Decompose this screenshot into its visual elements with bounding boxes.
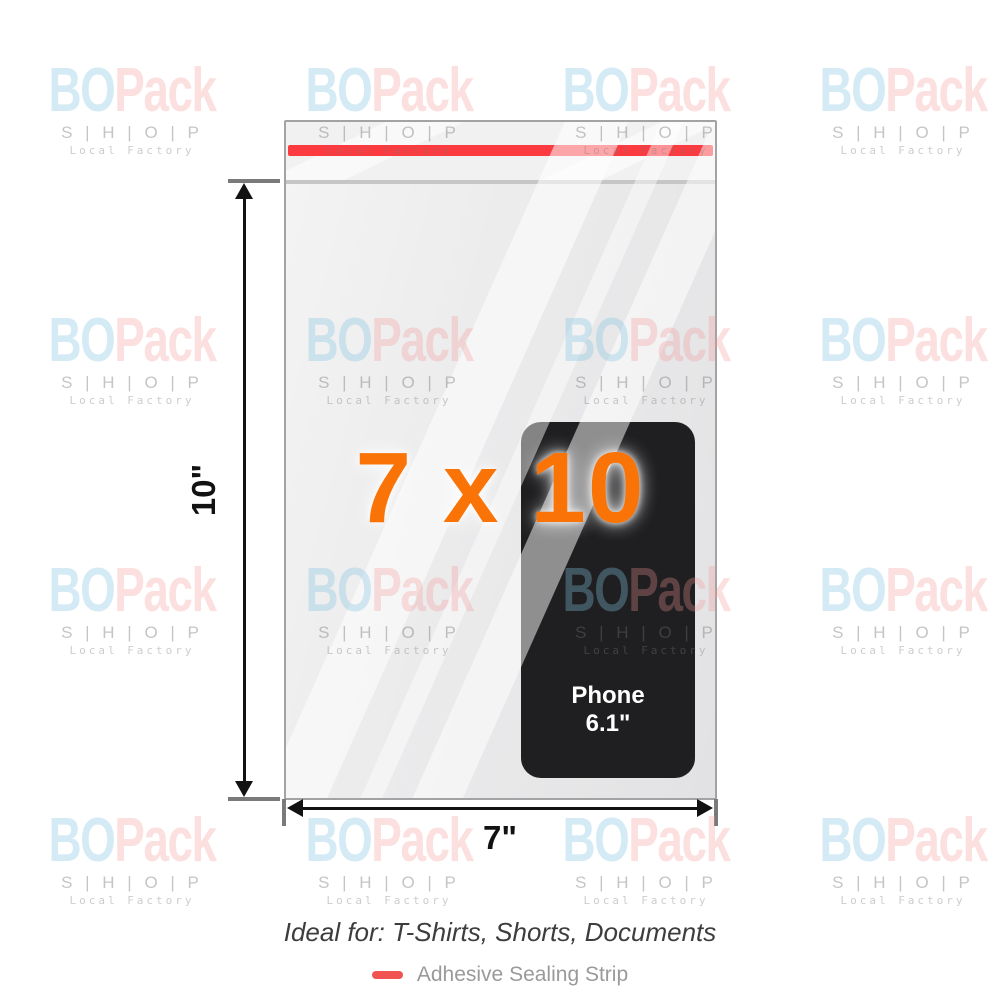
watermark-tagline: Local Factory: [0, 645, 272, 656]
watermark-shop-line: S | H | O | P: [0, 124, 272, 141]
legend-row: Adhesive Sealing Strip: [0, 961, 1000, 989]
phone-label-line2: 6.1": [521, 710, 695, 738]
watermark-brand: BOPack: [28, 810, 235, 872]
watermark-brand: BOPack: [542, 60, 749, 122]
watermark-brand: BOPack: [799, 560, 1000, 622]
legend-swatch: [372, 971, 403, 979]
watermark-tile: BOPack S | H | O | P Local Factory: [0, 810, 272, 906]
height-dimension-line: [243, 195, 246, 787]
arrow-up-icon: [235, 183, 253, 199]
watermark-brand-first: BO: [562, 56, 628, 125]
watermark-tagline: Local Factory: [506, 895, 786, 906]
width-tick-right: [714, 799, 718, 826]
watermark-brand-first: BO: [48, 556, 114, 625]
watermark-brand-second: Pack: [628, 56, 729, 125]
arrow-down-icon: [235, 781, 253, 797]
legend-label: Adhesive Sealing Strip: [417, 963, 628, 987]
watermark-brand: BOPack: [799, 810, 1000, 872]
phone-label: Phone 6.1": [521, 682, 695, 738]
watermark-tagline: Local Factory: [763, 145, 1000, 156]
watermark-shop-line: S | H | O | P: [763, 374, 1000, 391]
watermark-tagline: Local Factory: [0, 145, 272, 156]
phone-label-line1: Phone: [521, 682, 695, 710]
width-label: 7": [483, 819, 517, 857]
watermark-brand: BOPack: [799, 60, 1000, 122]
watermark-brand-second: Pack: [885, 56, 986, 125]
watermark-brand-first: BO: [48, 806, 114, 875]
watermark-brand: BOPack: [799, 310, 1000, 372]
watermark-shop-line: S | H | O | P: [0, 874, 272, 891]
watermark-brand-first: BO: [819, 556, 885, 625]
ideal-for-caption: Ideal for: T-Shirts, Shorts, Documents: [0, 917, 1000, 948]
watermark-brand-second: Pack: [371, 56, 472, 125]
watermark-brand-second: Pack: [114, 806, 215, 875]
watermark-brand-second: Pack: [885, 556, 986, 625]
watermark-shop-line: S | H | O | P: [0, 374, 272, 391]
watermark-shop-line: S | H | O | P: [0, 624, 272, 641]
watermark-tile: BOPack S | H | O | P Local Factory: [763, 310, 1000, 406]
height-label: 10": [185, 464, 223, 516]
height-tick-bottom: [228, 797, 280, 801]
product-image-canvas: Phone 6.1" 7 x 10 10" 7" Ideal for: T-Sh…: [0, 0, 1000, 1000]
watermark-shop-line: S | H | O | P: [763, 624, 1000, 641]
watermark-brand-second: Pack: [371, 806, 472, 875]
watermark-brand-second: Pack: [885, 806, 986, 875]
watermark-brand: BOPack: [285, 60, 492, 122]
watermark-brand-first: BO: [48, 306, 114, 375]
width-tick-left: [282, 799, 286, 826]
poly-bag: Phone 6.1" 7 x 10: [284, 120, 717, 800]
watermark-shop-line: S | H | O | P: [763, 874, 1000, 891]
watermark-brand-second: Pack: [114, 306, 215, 375]
watermark-brand-first: BO: [562, 806, 628, 875]
watermark-tagline: Local Factory: [763, 895, 1000, 906]
watermark-shop-line: S | H | O | P: [249, 874, 529, 891]
watermark-tagline: Local Factory: [763, 645, 1000, 656]
watermark-tagline: Local Factory: [249, 895, 529, 906]
watermark-brand-first: BO: [819, 806, 885, 875]
watermark-tile: BOPack S | H | O | P Local Factory: [763, 560, 1000, 656]
watermark-brand-second: Pack: [114, 556, 215, 625]
watermark-brand-first: BO: [819, 306, 885, 375]
watermark-tagline: Local Factory: [0, 395, 272, 406]
watermark-tile: BOPack S | H | O | P Local Factory: [763, 810, 1000, 906]
watermark-shop-line: S | H | O | P: [763, 124, 1000, 141]
size-text: 7 x 10: [286, 438, 715, 538]
watermark-brand: BOPack: [28, 60, 235, 122]
watermark-brand-first: BO: [305, 806, 371, 875]
arrow-left-icon: [287, 799, 303, 817]
watermark-brand: BOPack: [285, 810, 492, 872]
watermark-brand-second: Pack: [114, 56, 215, 125]
watermark-tagline: Local Factory: [763, 395, 1000, 406]
watermark-tagline: Local Factory: [0, 895, 272, 906]
watermark-brand: BOPack: [542, 810, 749, 872]
arrow-right-icon: [697, 799, 713, 817]
watermark-brand-second: Pack: [885, 306, 986, 375]
watermark-tile: BOPack S | H | O | P Local Factory: [0, 560, 272, 656]
watermark-tile: BOPack S | H | O | P Local Factory: [0, 60, 272, 156]
watermark-tile: BOPack S | H | O | P Local Factory: [0, 310, 272, 406]
watermark-tile: BOPack S | H | O | P Local Factory: [763, 60, 1000, 156]
watermark-brand: BOPack: [28, 560, 235, 622]
width-dimension-line: [300, 807, 700, 810]
watermark-brand-first: BO: [819, 56, 885, 125]
watermark-tile: BOPack S | H | O | P Local Factory: [506, 810, 786, 906]
watermark-shop-line: S | H | O | P: [506, 874, 786, 891]
watermark-brand: BOPack: [28, 310, 235, 372]
watermark-brand-first: BO: [48, 56, 114, 125]
watermark-brand-first: BO: [305, 56, 371, 125]
